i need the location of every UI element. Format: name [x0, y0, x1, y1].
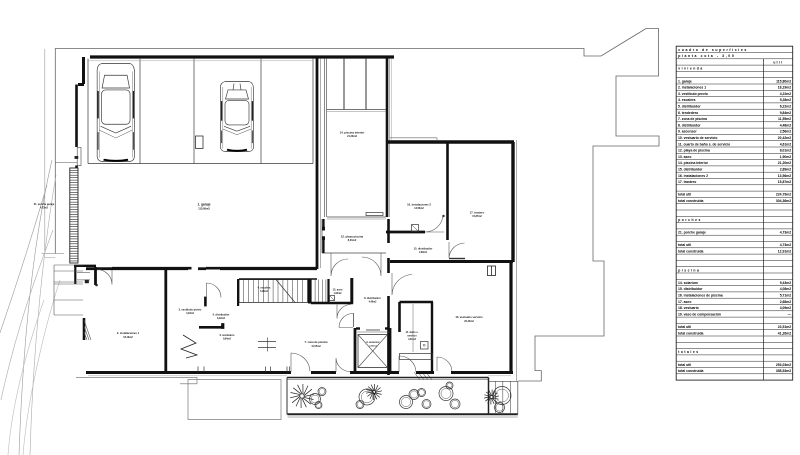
svg-text:1. garaje: 1. garaje: [678, 79, 692, 83]
svg-text:4. escalera: 4. escalera: [258, 287, 271, 290]
svg-text:8,01m2: 8,01m2: [348, 239, 357, 242]
svg-text:1,90m2: 1,90m2: [334, 293, 343, 295]
svg-text:total construida: total construida: [678, 199, 704, 203]
svg-text:total util: total util: [678, 325, 691, 329]
svg-text:8. distribuidor: 8. distribuidor: [364, 297, 381, 300]
svg-text:18. vestuario: 18. vestuario: [678, 306, 699, 310]
svg-text:5,28m2: 5,28m2: [780, 98, 792, 102]
svg-text:util: util: [773, 60, 783, 64]
svg-text:1,90m2: 1,90m2: [780, 155, 792, 159]
svg-text:21. porche garaje: 21. porche garaje: [34, 203, 55, 206]
svg-text:2,56m2: 2,56m2: [780, 130, 792, 134]
svg-text:19. vaso de compensación: 19. vaso de compensación: [678, 312, 721, 316]
svg-text:total util: total util: [678, 243, 691, 247]
svg-text:4,73m2: 4,73m2: [780, 243, 792, 247]
svg-text:15,87m2: 15,87m2: [472, 215, 482, 218]
svg-text:7. zona de piscina: 7. zona de piscina: [305, 340, 329, 344]
svg-text:piscina: piscina: [678, 268, 700, 272]
svg-text:15. distribuidor: 15. distribuidor: [678, 287, 703, 291]
svg-text:total util: total util: [678, 193, 691, 197]
svg-text:14. piscina interior: 14. piscina interior: [678, 161, 709, 165]
svg-text:9,84m2: 9,84m2: [780, 111, 792, 115]
svg-text:253,03m2: 253,03m2: [776, 363, 791, 367]
svg-text:5,28m2: 5,28m2: [260, 291, 269, 293]
svg-text:5,71m2: 5,71m2: [780, 294, 792, 298]
svg-text:2. instalaciones 1: 2. instalaciones 1: [117, 331, 140, 335]
svg-text:2. instalaciones 1: 2. instalaciones 1: [678, 86, 706, 90]
svg-text:11,55m2: 11,55m2: [778, 117, 791, 121]
svg-text:4,48m2: 4,48m2: [780, 123, 792, 127]
svg-text:4,61m2: 4,61m2: [780, 142, 792, 146]
svg-text:16. instalaciones 2: 16. instalaciones 2: [407, 203, 431, 207]
svg-text:15. distribuidor: 15. distribuidor: [678, 168, 703, 172]
svg-text:3. vestibulo previo: 3. vestibulo previo: [179, 308, 202, 312]
svg-text:14. solarium: 14. solarium: [678, 281, 698, 285]
svg-text:totales: totales: [678, 350, 699, 354]
svg-text:18,19m2: 18,19m2: [123, 336, 133, 339]
svg-text:13,56m2: 13,56m2: [414, 207, 424, 210]
svg-text:15,87m2: 15,87m2: [778, 180, 791, 184]
svg-text:9. ascensor: 9. ascensor: [366, 341, 379, 344]
svg-text:16. instalaciones de piscina: 16. instalaciones de piscina: [678, 294, 723, 298]
svg-text:304,36m2: 304,36m2: [776, 199, 791, 203]
svg-text:20,42m2: 20,42m2: [464, 320, 474, 323]
svg-text:4,22m2: 4,22m2: [780, 92, 792, 96]
svg-text:4,09m2: 4,09m2: [780, 306, 792, 310]
svg-text:9,43m2: 9,43m2: [780, 281, 792, 285]
svg-text:13. aseo: 13. aseo: [333, 289, 343, 292]
svg-text:10. vestuario de servicio: 10. vestuario de servicio: [678, 136, 717, 140]
svg-text:224,79m2: 224,79m2: [776, 193, 791, 197]
svg-text:2,89m2: 2,89m2: [419, 252, 428, 254]
svg-text:9. ascensor: 9. ascensor: [678, 130, 697, 134]
svg-text:8. distribuidor: 8. distribuidor: [678, 123, 701, 127]
svg-text:4,61m2: 4,61m2: [408, 338, 417, 341]
svg-text:planta cota - 3,00: planta cota - 3,00: [678, 54, 735, 58]
svg-text:16. instalaciones 2: 16. instalaciones 2: [678, 174, 708, 178]
svg-text:4. escalera: 4. escalera: [678, 98, 695, 102]
svg-text:12. playa de piscina: 12. playa de piscina: [678, 149, 710, 153]
svg-text:5. distribuidor: 5. distribuidor: [678, 105, 701, 109]
svg-text:1. garaje: 1. garaje: [198, 203, 211, 207]
svg-text:4,23m2: 4,23m2: [186, 312, 195, 315]
svg-text:total construida: total construida: [678, 331, 704, 335]
svg-text:17. aseo: 17. aseo: [678, 300, 691, 304]
svg-text:8,01m2: 8,01m2: [780, 149, 792, 153]
svg-text:115,80m2: 115,80m2: [198, 207, 210, 211]
svg-text:total construida: total construida: [678, 369, 704, 373]
svg-text:11. cuarto de baño s. de servi: 11. cuarto de baño s. de servicio: [678, 142, 730, 146]
svg-text:3. vestibulo previo: 3. vestibulo previo: [678, 92, 708, 96]
svg-text:4,73m2: 4,73m2: [40, 207, 49, 210]
svg-text:13. aseo: 13. aseo: [678, 155, 691, 159]
svg-text:total util: total util: [678, 363, 691, 367]
svg-text:17. trastero: 17. trastero: [678, 180, 696, 184]
svg-text:7. zona de piscina: 7. zona de piscina: [678, 117, 707, 121]
svg-text:6. tendedero: 6. tendedero: [678, 111, 698, 115]
svg-text:17. trastero: 17. trastero: [470, 211, 485, 215]
svg-text:21,20m2: 21,20m2: [778, 161, 791, 165]
svg-text:13,56m2: 13,56m2: [778, 174, 791, 178]
svg-text:6. tendedero: 6. tendedero: [220, 334, 235, 337]
svg-text:6,22m2: 6,22m2: [780, 105, 792, 109]
svg-text:12,91m2: 12,91m2: [778, 249, 791, 253]
svg-text:2,56m2: 2,56m2: [369, 345, 377, 347]
svg-text:18,19m2: 18,19m2: [778, 86, 791, 90]
svg-text:4,48m2: 4,48m2: [369, 301, 378, 304]
svg-text:21,20m2: 21,20m2: [347, 135, 357, 138]
svg-text:21. porche garaje: 21. porche garaje: [678, 231, 706, 235]
svg-text:15. distribuidor: 15. distribuidor: [414, 247, 433, 251]
svg-text:23,51m2: 23,51m2: [778, 325, 791, 329]
svg-text:358,53m2: 358,53m2: [776, 369, 791, 373]
svg-text:115,80m2: 115,80m2: [776, 79, 791, 83]
svg-text:4,08m2: 4,08m2: [780, 287, 792, 291]
svg-text:5. distribuidor: 5. distribuidor: [213, 314, 230, 317]
svg-text:4,73m2: 4,73m2: [780, 231, 792, 235]
svg-text:servicio: servicio: [407, 335, 417, 338]
svg-text:11,55m2: 11,55m2: [311, 345, 321, 348]
svg-text:12. playa piscina: 12. playa piscina: [341, 235, 364, 239]
svg-text:6,22m2: 6,22m2: [217, 318, 226, 320]
svg-text:2,89m2: 2,89m2: [780, 168, 792, 172]
svg-text:total construida: total construida: [678, 249, 704, 253]
svg-text:cuadro de superficies: cuadro de superficies: [678, 48, 748, 52]
svg-text:41,26m2: 41,26m2: [778, 331, 791, 335]
svg-text:vivienda: vivienda: [678, 67, 704, 71]
svg-text:11. baño s.: 11. baño s.: [406, 331, 419, 334]
svg-text:14. piscina interior: 14. piscina interior: [340, 131, 366, 135]
svg-text:porches: porches: [678, 218, 702, 222]
svg-text:9,84m2: 9,84m2: [223, 338, 232, 341]
svg-text:20,42m2: 20,42m2: [778, 136, 791, 140]
svg-text:2,68m2: 2,68m2: [780, 300, 792, 304]
svg-text:10. vestuario servicio: 10. vestuario servicio: [455, 315, 483, 319]
